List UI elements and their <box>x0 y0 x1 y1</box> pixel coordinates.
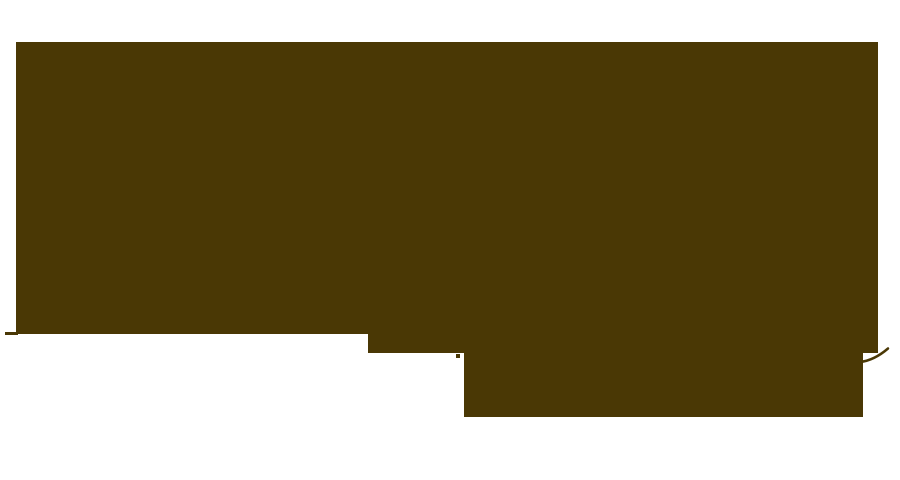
lower-right-block <box>464 352 863 417</box>
middle-step-block <box>368 333 878 353</box>
canvas-background <box>0 0 900 480</box>
left-tick-mark <box>5 332 18 335</box>
blob-silhouette <box>0 0 900 480</box>
small-dot <box>456 354 460 358</box>
main-block <box>16 42 878 334</box>
